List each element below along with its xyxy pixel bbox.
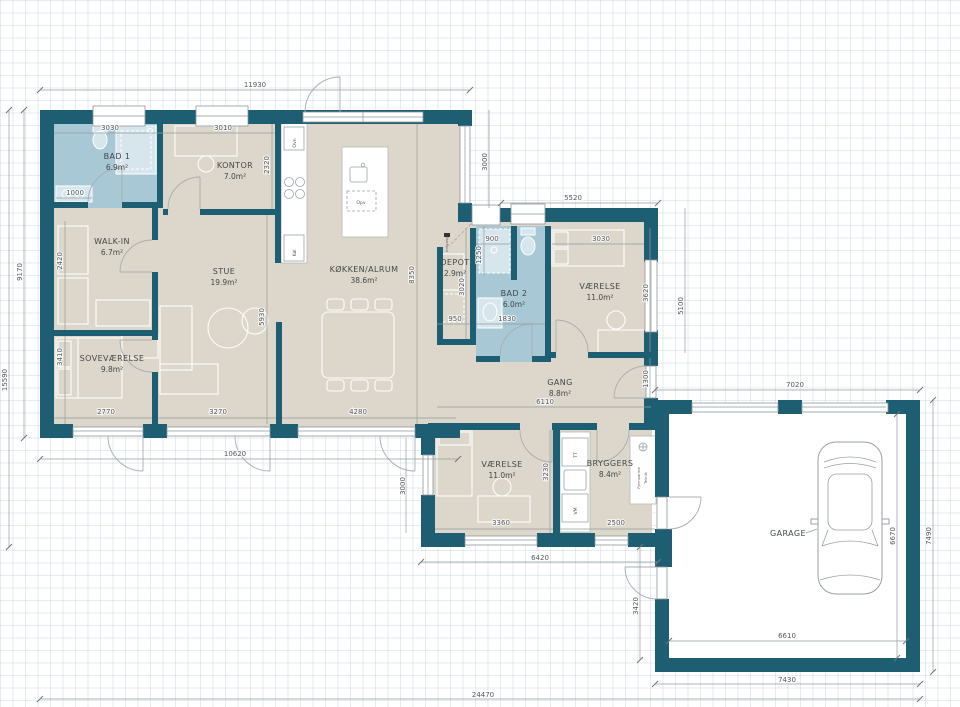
glazing-south (73, 427, 143, 436)
door-terrace-1 (108, 436, 143, 471)
dim-vaerelse-ne-height: 3620 (642, 284, 650, 302)
oven-label: Ovn (292, 138, 298, 147)
window-garage (692, 403, 778, 412)
dim-koekken-width: 4280 (349, 408, 367, 416)
floor-plan-page: 11930 3030 3010 1000 5520 900 3030 950 1… (0, 0, 960, 707)
car-mirror-right (882, 519, 889, 524)
dim-bryggers-width: 2500 (607, 519, 625, 527)
dim-left-total-height: 15590 (1, 369, 9, 391)
car-mirror-left (811, 519, 818, 524)
dim-walkin-height: 2420 (56, 252, 64, 270)
dim-koekken-right-height: 3000 (481, 153, 489, 171)
room-area-bryggers: 8.4m² (599, 470, 621, 479)
dim-garage-inner-width: 6610 (778, 632, 796, 640)
washer-label: VM (573, 507, 579, 514)
room-label-bad1: BAD 1 (104, 152, 131, 161)
floor-plan-canvas: 11930 3030 3010 1000 5520 900 3030 950 1… (0, 0, 960, 707)
dim-bad2-niche-width: 900 (485, 235, 498, 243)
dim-wing-right-height: 5100 (677, 297, 685, 315)
door-terrace-top (305, 77, 340, 112)
room-label-koekken: KØKKEN/ALRUM (330, 264, 399, 274)
dim-garage-right-height: 7490 (925, 527, 933, 545)
dim-left-inner-height: 9170 (16, 263, 24, 281)
door-opening (657, 567, 667, 599)
dim-koekken-height: 8350 (408, 266, 416, 284)
dim-bad1-vanity: 1000 (66, 189, 84, 197)
dim-wing-top-width: 5520 (564, 194, 582, 202)
dim-sovevaerelse-width: 2770 (97, 408, 115, 416)
room-area-walkin: 6.7m² (101, 248, 123, 257)
dim-garage-inner-height: 6670 (889, 527, 897, 545)
room-label-vaerelse-s: VÆRELSE (481, 460, 522, 469)
door-garage-side (625, 567, 657, 599)
dim-depot-height: 3020 (458, 278, 466, 296)
room-area-kontor: 7.0m² (224, 172, 246, 181)
dim-wing-bottom-width: 6420 (531, 554, 549, 562)
room-area-bad1: 6.9m² (106, 163, 128, 172)
dim-vaerelse-s-height: 3230 (542, 463, 550, 481)
room-label-stue: STUE (213, 267, 235, 276)
glazing-south (298, 427, 415, 436)
floors (47, 117, 913, 665)
room-label-depot: DEPOT (440, 258, 469, 267)
fridge-label: Køl (292, 249, 298, 256)
room-area-gang: 8.8m² (549, 389, 571, 398)
room-label-bryggers: BRYGGERS (587, 459, 634, 468)
dim-wing-left-height: 3000 (399, 477, 407, 495)
room-label-gang: GANG (547, 378, 572, 387)
dim-garage-left-height: 3420 (632, 597, 640, 615)
dim-overall-top: 11930 (244, 81, 266, 89)
dim-stue-height: 5930 (258, 308, 266, 326)
room-label-vaerelse-ne: VÆRELSE (579, 282, 620, 291)
entrance-label: Indgang (444, 236, 449, 252)
door-opening (657, 497, 667, 529)
dryer-label: TT (573, 452, 579, 459)
dim-kontor-depth: 2320 (263, 156, 271, 174)
dim-bad2-width: 1830 (498, 315, 516, 323)
room-label-sovevaerelse: SOVEVÆRELSE (80, 354, 145, 363)
utilities-label: Teknik (643, 471, 648, 485)
dim-vaerelse-s-width: 3360 (492, 519, 510, 527)
dim-vaerelse-ne-width: 3030 (592, 235, 610, 243)
car (811, 442, 889, 594)
dim-gang-right: 1300 (642, 370, 650, 388)
door-terrace-3 (380, 436, 415, 471)
entrance-opening (472, 205, 500, 225)
window-garage (802, 403, 888, 412)
room-area-vaerelse-s: 11.0m² (488, 471, 515, 480)
room-area-vaerelse-ne: 11.0m² (586, 293, 613, 302)
dim-garage-bottom-width: 7430 (778, 676, 796, 684)
room-label-garage: GARAGE (770, 529, 806, 538)
dim-stue-width: 3270 (209, 408, 227, 416)
entrance-marker-icon (444, 233, 450, 237)
dishwasher-label: Opv (356, 200, 366, 206)
window (465, 536, 537, 545)
room-area-stue: 19.9m² (210, 278, 237, 287)
dim-overall-bottom: 24470 (472, 691, 494, 699)
dim-bad2-niche-height: 1250 (475, 246, 483, 264)
room-label-kontor: KONTOR (217, 161, 253, 170)
room-label-bad2: BAD 2 (501, 289, 528, 298)
room-area-depot: 2.9m² (444, 269, 466, 278)
window (595, 536, 628, 545)
room-label-walkin: WALK-IN (94, 237, 130, 246)
room-area-bad2: 6.0m² (503, 300, 525, 309)
dim-main-bottom-width: 10620 (224, 450, 246, 458)
room-area-sovevaerelse: 9.8m² (101, 365, 123, 374)
dim-kontor-width: 3010 (214, 124, 232, 132)
kitchen-island (342, 147, 388, 237)
dim-depot-width: 950 (448, 315, 461, 323)
district-heating-label: Fjernvarme (636, 467, 641, 489)
dim-bad1-width: 3030 (101, 124, 119, 132)
dim-gang-width: 6110 (536, 398, 554, 406)
room-area-koekken: 38.6m² (350, 276, 377, 285)
glazing-south (167, 427, 270, 436)
dim-sovevaerelse-height: 3410 (56, 348, 64, 366)
dim-garage-top-width: 7020 (786, 381, 804, 389)
